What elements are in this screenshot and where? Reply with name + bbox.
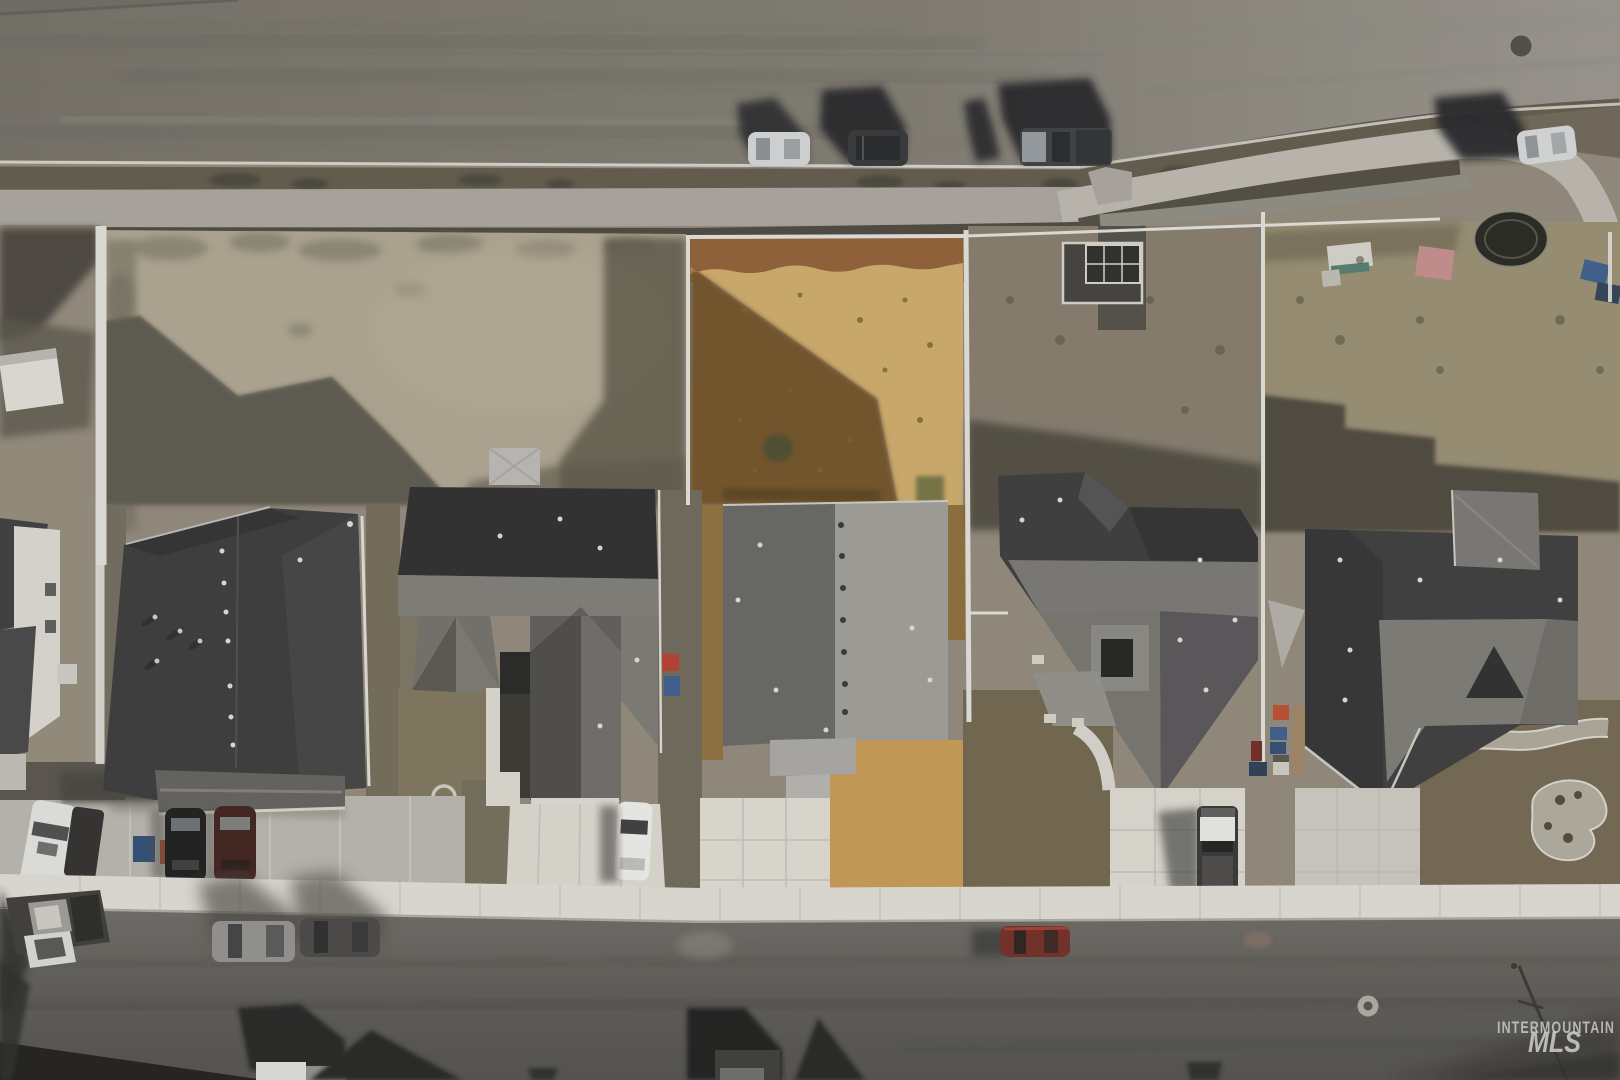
svg-text:MLS: MLS <box>1528 1026 1581 1059</box>
